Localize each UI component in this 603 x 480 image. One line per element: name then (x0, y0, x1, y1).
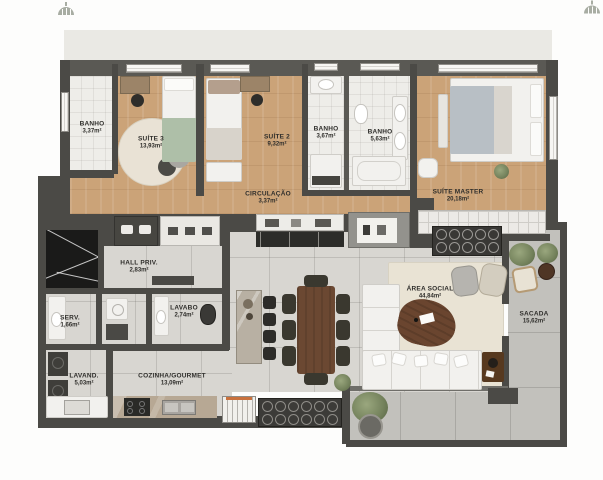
table-decor (485, 370, 494, 378)
appliance-door (52, 357, 64, 369)
balcony-plant (509, 243, 535, 266)
dining-chair (304, 275, 328, 287)
room-label-suite2: SUÍTE 2 9,32m² (264, 134, 290, 149)
room-name: SUÍTE 3 (138, 136, 164, 144)
dining-chair (336, 294, 350, 314)
sink-basin (394, 104, 406, 122)
wine-slot (275, 414, 286, 425)
room-label-banho-master: BANHO 5,63m² (368, 129, 393, 144)
cabinet-item (139, 225, 151, 234)
burner (127, 401, 133, 407)
shelf-item (315, 219, 331, 227)
bathtub (352, 156, 406, 186)
room-area: 15,62m² (519, 318, 548, 325)
room-area: 44,84m² (407, 293, 454, 300)
room-area: 13,09m² (138, 380, 206, 387)
table-lamp (488, 358, 498, 368)
room-name: ÁREA SOCIAL (407, 286, 454, 294)
wine-slot (262, 414, 273, 425)
room-area: 13,93m² (138, 143, 164, 150)
sink-bowl (181, 403, 194, 412)
dining-chair (336, 320, 350, 340)
corridor-floor (70, 178, 112, 214)
wall-segment (96, 294, 102, 346)
laundry-appliance (48, 352, 68, 376)
wine-slot (488, 229, 499, 240)
wine-slot (475, 229, 486, 240)
wall-segment (342, 386, 350, 444)
bed-blanket (450, 86, 494, 154)
room-area: 2,83m² (120, 267, 157, 274)
room-name: SACADA (519, 311, 548, 319)
room-label-banho-suite3: BANHO 3,37m² (80, 121, 105, 136)
room-area: 5,03m² (69, 380, 98, 387)
toilet (354, 104, 368, 124)
wall-segment (112, 344, 229, 351)
wall-segment (222, 214, 230, 350)
wine-bar-cabinet (258, 398, 342, 427)
exterior-plaster-band (64, 30, 552, 61)
window (438, 64, 538, 73)
dresser (206, 162, 242, 182)
sink-bowl (165, 403, 178, 412)
window (61, 92, 69, 132)
room-name: BANHO (314, 126, 339, 134)
wine-slot (488, 242, 499, 253)
wall-segment (60, 170, 114, 178)
room-name: LAVAND. (69, 373, 98, 381)
marble-vein (46, 230, 100, 261)
lounge-chair (450, 264, 480, 297)
marble-vein (57, 272, 100, 285)
wall-segment (196, 64, 204, 196)
wine-slot (301, 401, 312, 412)
window (549, 96, 558, 160)
wall-segment (146, 294, 152, 346)
corridor-cabinet (114, 216, 158, 246)
window (314, 63, 338, 71)
wine-slot (449, 229, 460, 240)
stool (263, 330, 276, 343)
room-name: SUÍTE MASTER (433, 189, 484, 197)
wine-slot (462, 242, 473, 253)
balcony-chair (511, 265, 539, 294)
wall-segment (344, 64, 349, 190)
room-name: HALL PRIV. (120, 260, 157, 268)
room-name: BANHO (80, 121, 105, 129)
wall-segment (98, 226, 104, 290)
cabinet-item (202, 227, 212, 235)
armchair (418, 158, 438, 178)
wine-slot (462, 229, 473, 240)
washer (106, 298, 128, 320)
cabinet-item (121, 225, 133, 234)
sofa-pillow (413, 354, 428, 367)
dining-chair (336, 346, 350, 366)
wall-segment (302, 64, 308, 194)
room-label-banho-suite2: BANHO 3,67m² (314, 126, 339, 141)
desk-chair (131, 94, 144, 107)
room-name: BANHO (368, 129, 393, 137)
room-label-area-social: ÁREA SOCIAL 44,84m² (407, 286, 454, 301)
wall-segment (560, 222, 567, 447)
bed-throw (494, 86, 512, 154)
wine-slot (301, 414, 312, 425)
wall-segment (410, 64, 417, 198)
sofa-pillow (371, 353, 387, 367)
kitchen-double-sink (162, 400, 196, 415)
wine-slot (314, 414, 325, 425)
bed-bench (438, 94, 448, 148)
stool (263, 313, 276, 326)
grill-churrasqueira (222, 396, 256, 423)
utility-shelf (106, 324, 128, 340)
house-logo-icon (582, 0, 602, 15)
wine-slot (262, 401, 273, 412)
cabinet-item (168, 227, 178, 235)
wall-segment (38, 176, 70, 226)
burner (127, 408, 133, 414)
cabinet-item (377, 225, 386, 235)
room-label-serv: SERV. 1,66m² (60, 315, 80, 330)
marble-shaft-floor (46, 230, 100, 288)
kitchen-tall-cabinet (348, 212, 410, 248)
coffee-table-decor (414, 318, 418, 322)
wine-slot (288, 401, 299, 412)
house-logo-icon (56, 2, 76, 16)
wine-slot (449, 242, 460, 253)
wall-segment (38, 418, 114, 428)
washer-door (112, 304, 124, 316)
room-name: SUÍTE 2 (264, 134, 290, 142)
marble-island (236, 290, 262, 364)
wall-segment (38, 226, 46, 426)
bed-pillow (530, 84, 542, 118)
bed-pillow (208, 80, 240, 94)
cabinet-item (363, 225, 370, 235)
balcony-plant (537, 243, 558, 263)
bed-pillow (164, 78, 194, 91)
toilet (200, 304, 216, 325)
desk (120, 76, 150, 94)
wine-slot (275, 401, 286, 412)
cooktop (124, 398, 150, 416)
sink-basin (156, 310, 166, 324)
sofa-pillow (433, 352, 449, 366)
bathtub-inner (357, 161, 401, 181)
room-label-suite3: SUÍTE 3 13,93m² (138, 136, 164, 151)
wine-slot (327, 401, 338, 412)
window (360, 63, 400, 71)
room-name: COZINHA/GOURMET (138, 373, 206, 381)
wall-pillar (488, 388, 518, 404)
dining-chair (282, 294, 296, 314)
grill-skewers (226, 397, 252, 400)
sink-basin (394, 132, 406, 150)
room-area: 5,63m² (368, 136, 393, 143)
cabinet-item (185, 227, 195, 235)
room-label-sacada: SACADA 15,62m² (519, 311, 548, 326)
side-table (482, 352, 504, 382)
dining-chair (282, 320, 296, 340)
room-label-circulacao: CIRCULAÇÃO 3,37m² (245, 191, 291, 206)
island-decor (246, 313, 253, 320)
bed-pillow (530, 122, 542, 156)
plant-pot (358, 414, 383, 439)
desk (240, 76, 270, 92)
wine-slot (288, 414, 299, 425)
stool (263, 347, 276, 360)
bed-blanket (206, 128, 242, 160)
wall-segment (112, 64, 118, 174)
wall-segment (346, 440, 567, 447)
sofa-section (362, 284, 400, 354)
burner (139, 408, 145, 414)
sink-basin (318, 79, 334, 90)
wine-slot (314, 401, 325, 412)
room-name: LAVABO (170, 305, 198, 313)
window (210, 64, 250, 73)
room-name: SERV. (60, 315, 80, 323)
window (126, 64, 182, 73)
shelf-item (291, 219, 301, 227)
floor-plan: BANHO 3,37m² SUÍTE 3 13,93m² SUÍTE 2 9,3… (0, 0, 603, 480)
room-name: CIRCULAÇÃO (245, 191, 291, 199)
room-label-lavabo: LAVABO 2,74m² (170, 305, 198, 320)
burner (139, 401, 145, 407)
shower-mat (312, 176, 340, 185)
shelf-item (265, 219, 279, 227)
potted-plant (494, 164, 509, 179)
wine-slot (475, 242, 486, 253)
wall-segment (302, 190, 412, 196)
stool (263, 296, 276, 309)
laundry-sink (64, 400, 90, 415)
room-area: 3,37m² (80, 128, 105, 135)
room-area: 1,66m² (60, 322, 80, 329)
room-label-lavand: LAVAND. 5,03m² (69, 373, 98, 388)
island-decor (243, 299, 253, 309)
bed-blanket (162, 118, 196, 162)
room-label-suite-master: SUÍTE MASTER 20,18m² (433, 189, 484, 204)
dining-chair (282, 346, 296, 366)
room-area: 2,74m² (170, 312, 198, 319)
room-label-cozinha: COZINHA/GOURMET 13,09m² (138, 373, 206, 388)
open-shelf (256, 214, 344, 231)
room-area: 9,32m² (264, 141, 290, 148)
room-label-hall-priv: HALL PRIV. 2,83m² (120, 260, 157, 275)
dining-table (297, 286, 335, 374)
wine-slot (436, 242, 447, 253)
wine-slot (327, 414, 338, 425)
binder-shelf (256, 232, 344, 247)
wall-segment (46, 288, 226, 294)
balcony-table (538, 263, 555, 280)
potted-plant (334, 374, 351, 391)
wine-cabinet (432, 226, 502, 256)
room-area: 3,67m² (314, 133, 339, 140)
corridor-cabinet (160, 216, 220, 246)
wine-slot (436, 229, 447, 240)
room-area: 3,37m² (245, 198, 291, 205)
room-area: 20,18m² (433, 196, 484, 203)
desk-chair (251, 94, 263, 106)
hall-console (152, 276, 194, 285)
wall-segment (38, 344, 112, 350)
dining-chair (304, 373, 328, 385)
